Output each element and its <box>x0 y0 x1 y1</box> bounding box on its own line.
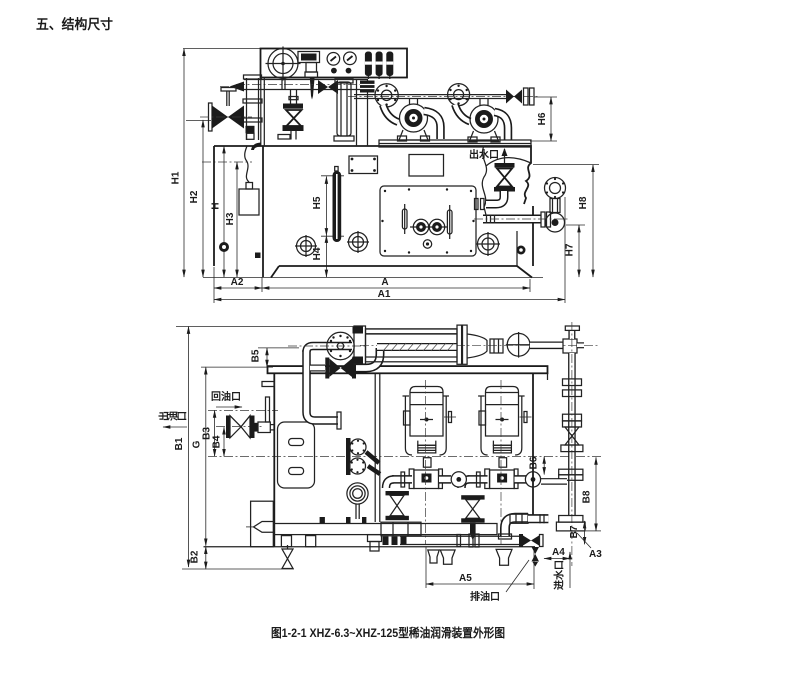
svg-text:G: G <box>192 440 203 448</box>
svg-text:H7: H7 <box>565 243 576 256</box>
svg-text:排油口: 排油口 <box>470 590 500 603</box>
svg-text:A3: A3 <box>589 549 602 560</box>
svg-text:A5: A5 <box>459 573 472 584</box>
svg-text:出水口: 出水口 <box>469 148 499 161</box>
svg-text:H1: H1 <box>171 171 182 184</box>
svg-text:B1: B1 <box>174 437 185 450</box>
svg-text:H: H <box>211 202 222 209</box>
svg-text:B7: B7 <box>569 525 580 538</box>
svg-text:口: 口 <box>178 411 189 421</box>
svg-text:H3: H3 <box>225 212 236 225</box>
svg-text:B4: B4 <box>212 435 223 448</box>
svg-text:H6: H6 <box>537 112 548 125</box>
svg-text:B6: B6 <box>529 456 540 469</box>
svg-text:A2: A2 <box>231 277 244 288</box>
svg-text:回油口: 回油口 <box>211 390 241 403</box>
svg-text:A4: A4 <box>552 547 565 558</box>
svg-text:进水口: 进水口 <box>553 560 566 590</box>
svg-text:A1: A1 <box>378 289 391 300</box>
svg-text:H8: H8 <box>578 196 589 209</box>
svg-text:B5: B5 <box>251 349 262 362</box>
svg-text:图1-2-1 XHZ-6.3~XHZ-125型稀油润滑装置: 图1-2-1 XHZ-6.3~XHZ-125型稀油润滑装置外形图 <box>271 625 505 640</box>
svg-text:H5: H5 <box>312 196 323 209</box>
svg-text:H4: H4 <box>312 247 323 260</box>
svg-text:B8: B8 <box>582 490 593 503</box>
svg-text:H2: H2 <box>189 190 200 203</box>
svg-text:B2: B2 <box>190 550 201 563</box>
svg-text:五、结构尺寸: 五、结构尺寸 <box>36 16 113 32</box>
svg-text:A: A <box>381 277 388 288</box>
